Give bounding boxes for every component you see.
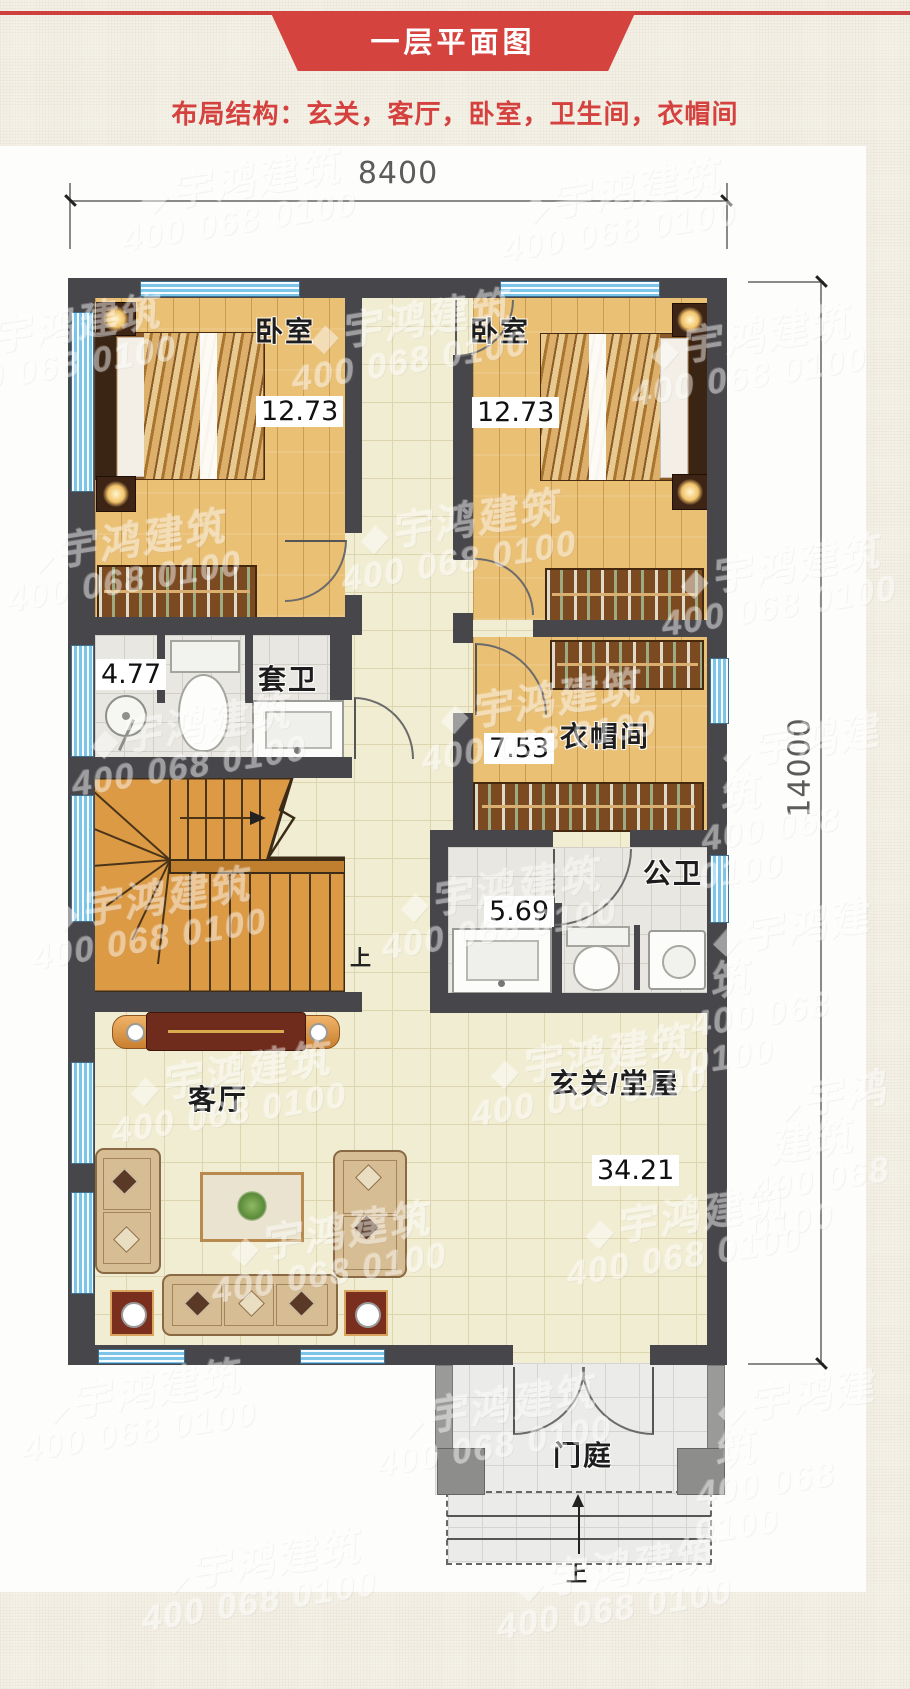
extension-line — [726, 183, 728, 249]
living-room-label: 客厅 — [188, 1078, 248, 1118]
entry-arrow — [578, 1502, 580, 1554]
cloakroom-area: 7.53 — [484, 733, 554, 764]
entry-hall-label: 玄关/堂屋 — [550, 1062, 680, 1102]
wall-stairs-bottom — [68, 992, 362, 1012]
floor-plan-page: { "header": { "title": "一层平面图", "subtitl… — [0, 0, 910, 1689]
dimension-width: 8400 — [338, 156, 458, 191]
toilet-tank — [566, 926, 630, 947]
lamp-glow-icon — [677, 307, 703, 333]
cloakroom-rack — [473, 782, 704, 832]
window — [71, 312, 94, 492]
partition — [245, 635, 253, 703]
sofa-bottom — [162, 1274, 338, 1336]
page-title: 一层平面图 — [270, 11, 636, 71]
porch-column — [677, 1448, 725, 1495]
ensuite-bath-area: 4.77 — [96, 659, 166, 690]
extension-line — [748, 1363, 824, 1365]
side-table — [110, 1290, 154, 1336]
toilet-tank — [170, 640, 240, 673]
wall-right — [707, 278, 727, 1365]
clothes-rail — [557, 663, 698, 666]
bedroom-left-label: 卧室 — [255, 310, 315, 350]
bed-runner — [200, 333, 217, 479]
public-bath-label: 公卫 — [643, 852, 703, 892]
wall-corridor-left — [345, 298, 362, 533]
round-sink — [648, 930, 706, 990]
bedroom-left-area: 12.73 — [256, 396, 343, 427]
bedroom-right-label: 卧室 — [470, 310, 530, 350]
toilet-bowl — [178, 674, 230, 752]
plant-icon — [237, 1191, 267, 1221]
coffee-table — [200, 1172, 304, 1242]
dimension-line-right — [820, 283, 822, 1365]
wall-corridor-right — [453, 613, 473, 643]
knob-icon — [126, 1023, 145, 1042]
wall-bottom — [650, 1345, 727, 1365]
public-bath-area: 5.69 — [484, 896, 554, 927]
extension-line — [748, 281, 824, 283]
vanity-sink — [252, 700, 344, 760]
entry-hall-area: 34.21 — [592, 1155, 679, 1186]
wall-bedroom-right — [533, 620, 707, 637]
wall-bedroom-left — [95, 617, 345, 635]
wall-cloakroom-left — [453, 713, 473, 830]
pillows — [117, 337, 145, 477]
nightstand-lamp — [96, 476, 136, 512]
cloakroom-rack — [550, 640, 704, 690]
lamp-glow-icon — [103, 306, 129, 332]
stairs-up-label: 上 — [350, 942, 371, 972]
lamp-glow-icon — [103, 481, 129, 507]
window — [300, 1349, 385, 1364]
window — [140, 281, 300, 297]
staircase — [92, 778, 345, 992]
entry-arrowhead-icon — [572, 1494, 584, 1507]
window — [71, 1192, 94, 1294]
armchair-left — [95, 1148, 161, 1274]
porch-wall — [435, 1365, 453, 1452]
layout-subtitle: 布局结构：玄关，客厅，卧室，卫生间，衣帽间 — [0, 94, 910, 131]
vanity-sink — [452, 928, 552, 994]
headboard — [689, 334, 709, 480]
headboard — [96, 333, 116, 479]
nightstand-lamp — [672, 474, 708, 510]
cloakroom-label: 衣帽间 — [560, 715, 650, 755]
dimension-height: 14000 — [783, 698, 818, 838]
wardrobe-rack — [97, 565, 257, 619]
bed-left — [95, 332, 265, 480]
wall-ensuite-right — [330, 635, 352, 700]
entry-up-label: 上 — [566, 1558, 587, 1588]
porch-label: 门庭 — [553, 1434, 613, 1474]
chaise-right — [333, 1150, 407, 1278]
window — [71, 795, 94, 922]
tv-cabinet — [146, 1012, 306, 1051]
wall-corridor-left — [345, 595, 362, 635]
porch-wall — [707, 1365, 725, 1452]
bed-runner — [589, 334, 606, 480]
wall-publicbath-left — [430, 847, 448, 1013]
wall-publicbath-top — [430, 830, 553, 847]
toilet-bowl — [573, 945, 620, 991]
porch-column — [437, 1448, 485, 1495]
partition — [634, 925, 640, 990]
window — [500, 281, 660, 297]
pillows — [660, 338, 688, 478]
wall-publicbath-bottom — [430, 993, 727, 1013]
knob-icon — [309, 1023, 328, 1042]
wall-ensuite-bottom — [68, 757, 352, 778]
wall-corridor-right — [453, 355, 473, 560]
toilet — [566, 926, 626, 990]
bed-right — [540, 333, 710, 481]
clothes-rail — [104, 590, 251, 593]
wall-publicbath-top — [630, 830, 727, 847]
side-table — [344, 1290, 388, 1336]
nightstand-lamp — [672, 303, 708, 337]
window — [98, 1349, 185, 1364]
wardrobe-rack — [545, 568, 704, 622]
window — [71, 1062, 94, 1164]
window — [710, 855, 729, 923]
clothes-rail — [552, 593, 698, 596]
extension-line — [69, 183, 71, 249]
lamp-glow-icon — [677, 479, 703, 505]
window — [71, 645, 94, 757]
nightstand-lamp — [96, 302, 136, 336]
toilet — [170, 640, 236, 752]
clothes-rail — [482, 805, 695, 808]
ensuite-bath-label: 套卫 — [258, 658, 318, 698]
dimension-line-top — [70, 200, 727, 202]
bedroom-right-area: 12.73 — [472, 397, 559, 428]
window — [710, 658, 729, 724]
